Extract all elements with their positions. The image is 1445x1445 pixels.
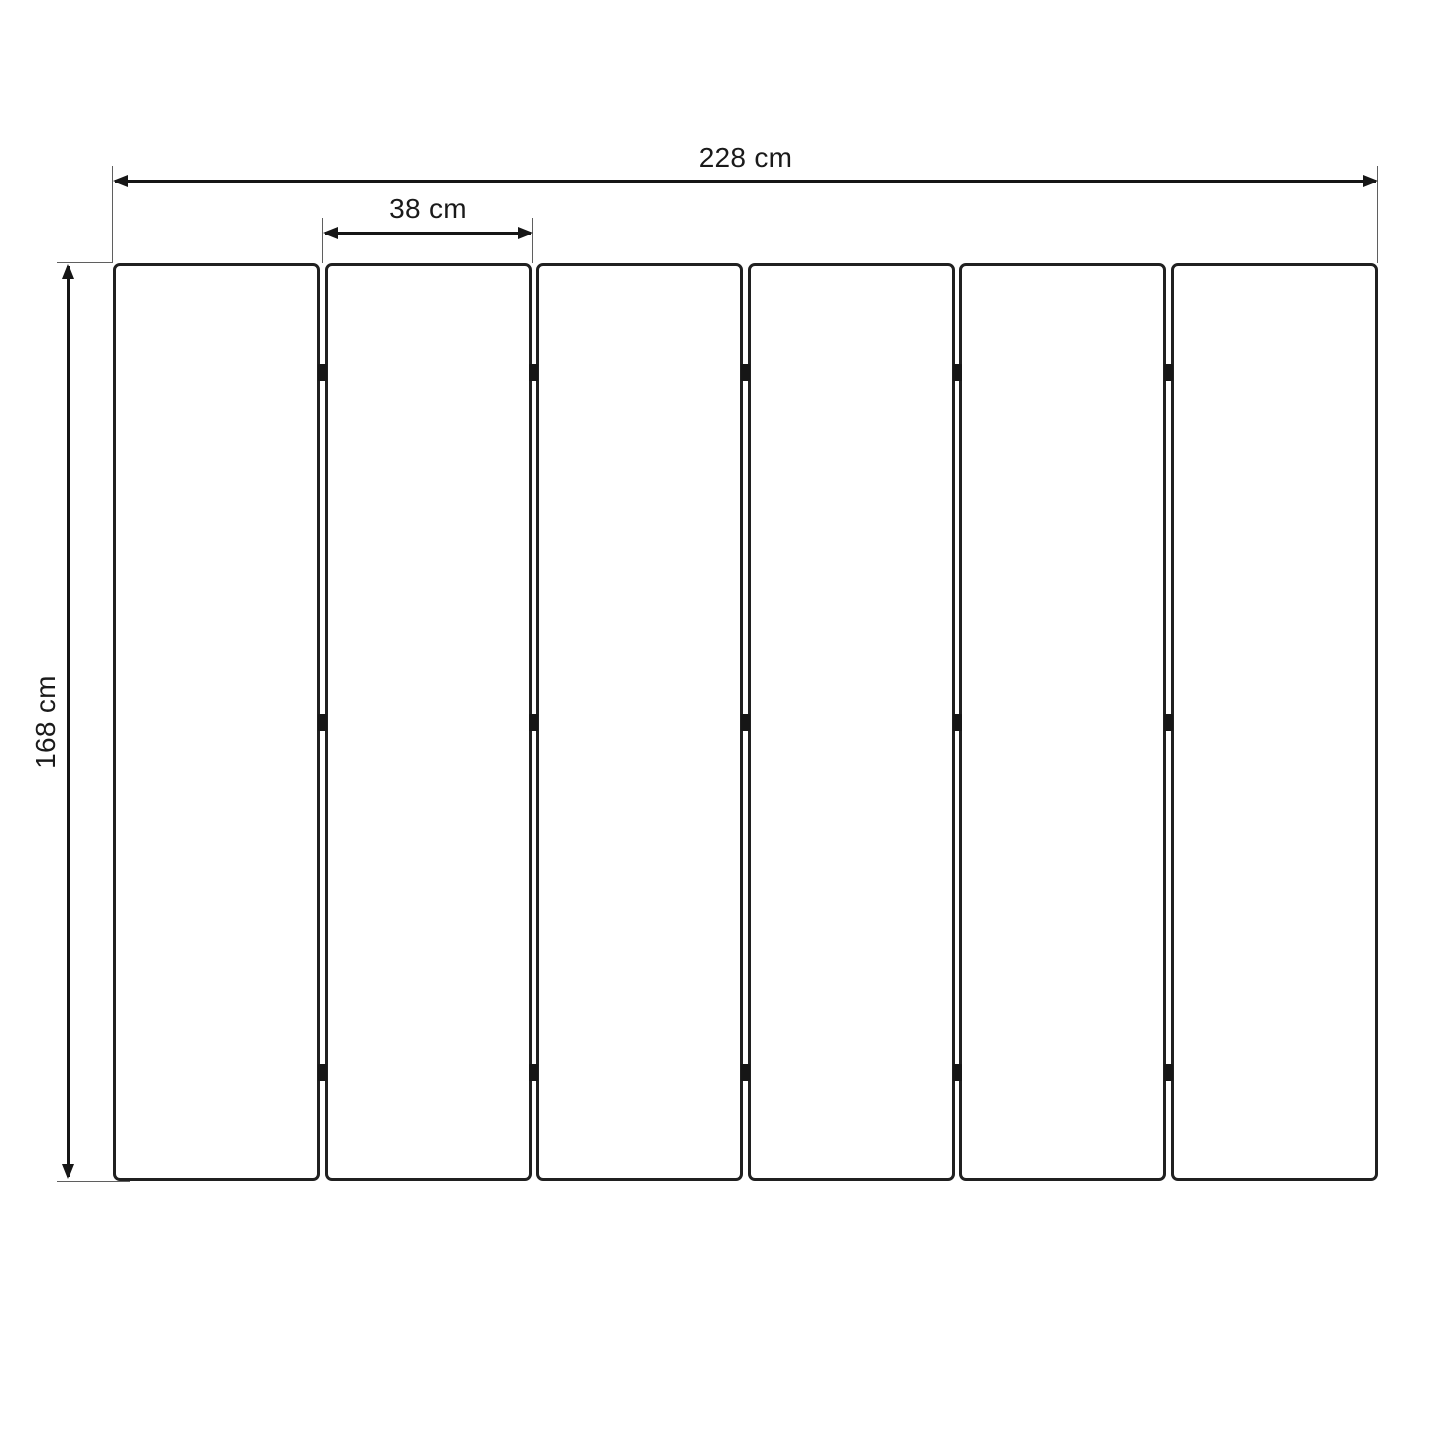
hinge-connector bbox=[1164, 1064, 1173, 1081]
height-label: 168 cm bbox=[31, 657, 61, 787]
arrowhead-left-icon bbox=[323, 227, 338, 239]
hinge-connector bbox=[318, 714, 327, 731]
hinge-connector bbox=[1164, 714, 1173, 731]
extension-line-height-bottom bbox=[57, 1181, 130, 1182]
hinge-connector bbox=[741, 714, 750, 731]
hinge-connector bbox=[953, 364, 962, 381]
panel-5 bbox=[959, 263, 1166, 1181]
hinge-connector bbox=[741, 1064, 750, 1081]
arrowhead-up-icon bbox=[62, 264, 74, 279]
hinge-connector bbox=[529, 364, 538, 381]
extension-line-panel-right bbox=[532, 218, 533, 263]
panel-width-dimension-line bbox=[325, 232, 531, 235]
hinge-connector bbox=[318, 1064, 327, 1081]
arrowhead-left-icon bbox=[113, 175, 128, 187]
hinge-connector bbox=[1164, 364, 1173, 381]
hinge-connector bbox=[953, 714, 962, 731]
panel-3 bbox=[536, 263, 743, 1181]
total-width-dimension-line bbox=[115, 180, 1376, 183]
hinge-connector bbox=[529, 714, 538, 731]
hinge-connector bbox=[953, 1064, 962, 1081]
panel-6 bbox=[1171, 263, 1378, 1181]
diagram-canvas: 228 cm 38 cm 168 cm bbox=[0, 0, 1445, 1445]
panel-1 bbox=[113, 263, 320, 1181]
panel-width-label: 38 cm bbox=[325, 194, 531, 224]
hinge-connector bbox=[318, 364, 327, 381]
extension-line-panel-left bbox=[322, 218, 323, 263]
extension-line-height-top bbox=[57, 262, 113, 263]
height-dimension-line bbox=[67, 266, 70, 1177]
arrowhead-right-icon bbox=[518, 227, 533, 239]
hinge-connector bbox=[741, 364, 750, 381]
panel-4 bbox=[748, 263, 955, 1181]
arrowhead-down-icon bbox=[62, 1164, 74, 1179]
total-width-label: 228 cm bbox=[115, 143, 1376, 173]
hinge-connector bbox=[529, 1064, 538, 1081]
panel-2 bbox=[325, 263, 532, 1181]
arrowhead-right-icon bbox=[1363, 175, 1378, 187]
